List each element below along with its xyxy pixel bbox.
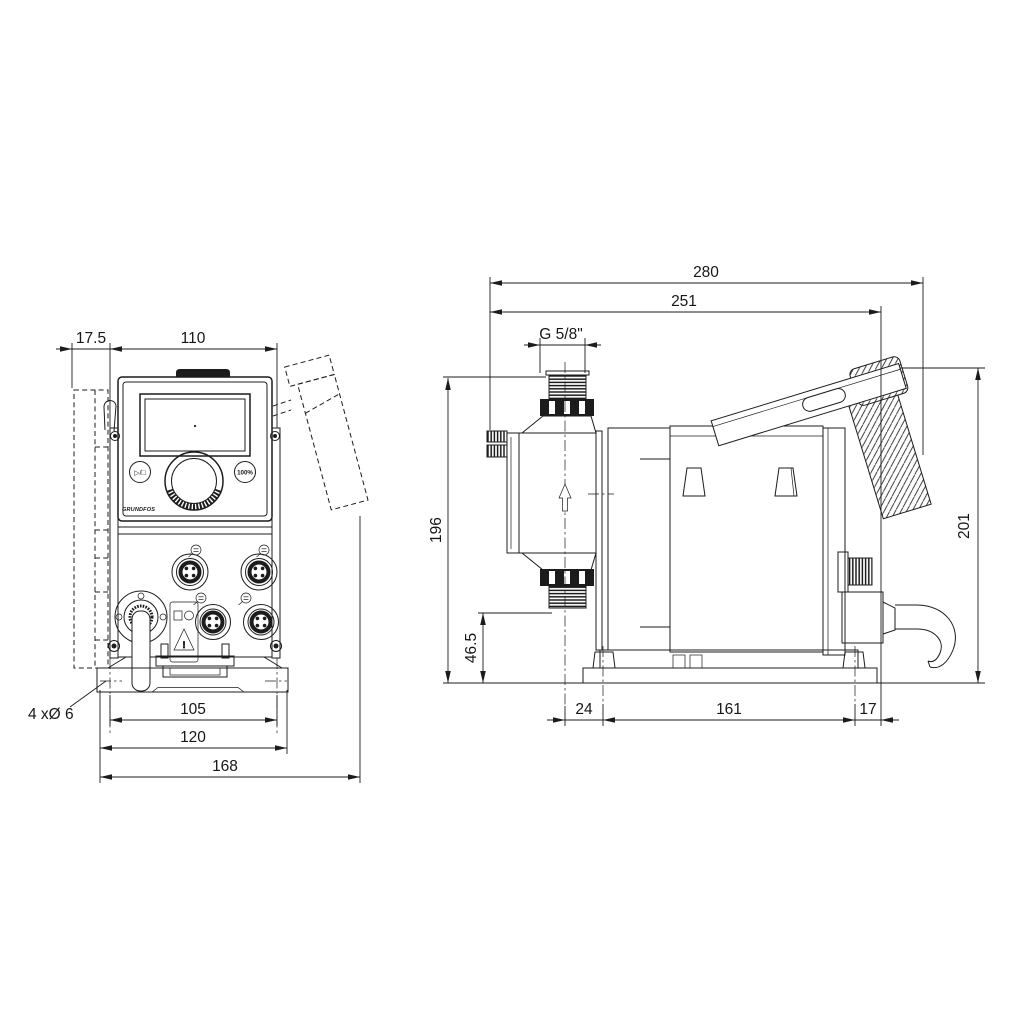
dim-label-overall-width: 168 bbox=[212, 758, 238, 775]
pump-dimensional-drawing: ▷/□ 100% GRUNDFOS bbox=[0, 0, 1024, 1024]
dim-label-hole-pitch: 105 bbox=[180, 701, 206, 718]
dim-label-head-offset: 24 bbox=[575, 701, 593, 718]
dim-label-bracket-offset: 17.5 bbox=[76, 330, 106, 347]
dim-label-base-width: 120 bbox=[180, 729, 206, 746]
dim-label-thread: G 5/8" bbox=[539, 326, 582, 343]
rear-stud-thread bbox=[848, 558, 872, 585]
display-cursor bbox=[194, 425, 196, 427]
dim-label-panel-width: 110 bbox=[181, 330, 206, 347]
capacity-label: 100% bbox=[237, 470, 253, 477]
dim-label-outlet-height: 196 bbox=[428, 517, 445, 543]
vent-valve[interactable] bbox=[487, 431, 507, 442]
vent-valve[interactable] bbox=[487, 445, 507, 457]
power-cable bbox=[132, 611, 150, 691]
dim-label-overall-height: 201 bbox=[956, 513, 973, 539]
inlet-thread bbox=[549, 586, 586, 608]
warning-exclamation: ! bbox=[183, 640, 186, 650]
dim-label-mounting-holes: 4 xØ 6 bbox=[28, 706, 74, 723]
dim-label-depth-to-connector: 251 bbox=[671, 293, 697, 310]
top-cap bbox=[176, 369, 230, 377]
grundfos-logo: GRUNDFOS bbox=[122, 507, 155, 513]
dim-label-overall-depth: 280 bbox=[693, 264, 719, 281]
dim-label-inlet-height: 46.5 bbox=[463, 633, 480, 663]
outlet-thread bbox=[549, 375, 586, 399]
dim-label-foot-pitch: 161 bbox=[716, 701, 742, 718]
start-stop-glyph: ▷/□ bbox=[134, 470, 146, 477]
dim-label-rear-offset: 17 bbox=[859, 701, 876, 718]
